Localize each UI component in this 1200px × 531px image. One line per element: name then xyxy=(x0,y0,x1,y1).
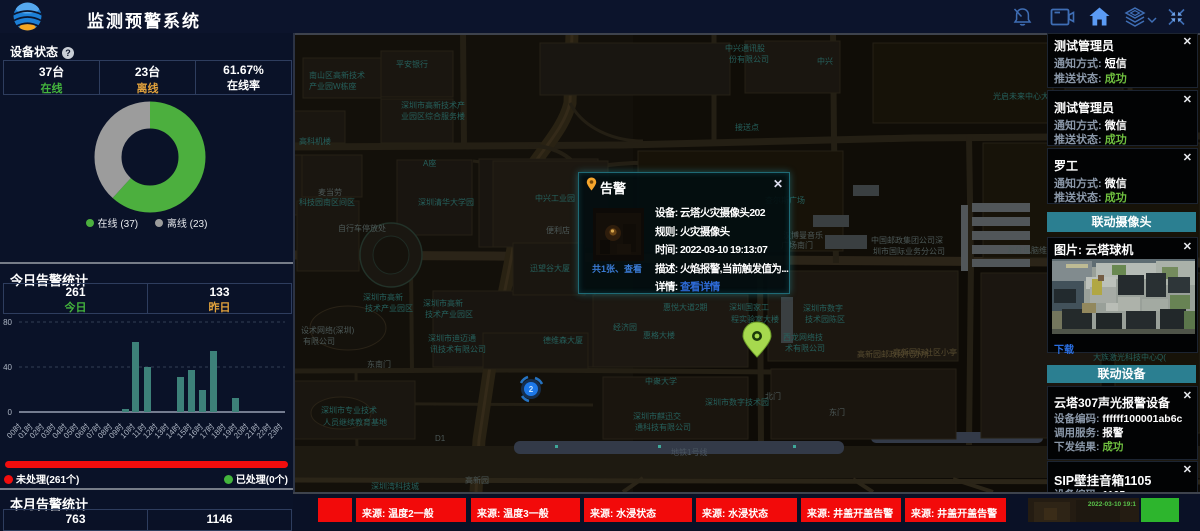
svg-text:惠悦大道2期: 惠悦大道2期 xyxy=(663,302,707,312)
svg-text:南山区高新技术: 南山区高新技术 xyxy=(309,70,365,80)
svg-text:份有限公司: 份有限公司 xyxy=(729,54,769,64)
svg-text:高新国际社区小亭: 高新国际社区小亭 xyxy=(893,347,957,357)
svg-text:业园区综合服务楼: 业园区综合服务楼 xyxy=(401,111,465,121)
svg-text:麦当劳: 麦当劳 xyxy=(318,187,342,197)
svg-text:A座: A座 xyxy=(423,158,436,168)
svg-text:40: 40 xyxy=(3,363,12,372)
svg-text:2: 2 xyxy=(529,385,534,394)
svg-text:接送点: 接送点 xyxy=(735,122,759,132)
svg-text:自行车停放处: 自行车停放处 xyxy=(338,223,386,233)
svg-text:中兴通讯股: 中兴通讯股 xyxy=(725,43,765,53)
svg-text:德维森大厦: 德维森大厦 xyxy=(543,335,583,345)
svg-text:人员继续教育基地: 人员继续教育基地 xyxy=(323,417,387,427)
svg-text:深圳市迪迈通: 深圳市迪迈通 xyxy=(428,333,476,343)
svg-text:东南门: 东南门 xyxy=(367,359,391,369)
svg-text:惠格大楼: 惠格大楼 xyxy=(643,330,675,340)
svg-text:D1: D1 xyxy=(435,434,446,443)
svg-text:地铁1号线: 地铁1号线 xyxy=(671,447,707,457)
svg-text:便利店: 便利店 xyxy=(546,225,570,235)
svg-text:中国邮政集团公司深: 中国邮政集团公司深 xyxy=(871,235,943,245)
svg-text:迅望谷大厦: 迅望谷大厦 xyxy=(530,263,570,273)
svg-text:北门: 北门 xyxy=(765,391,781,401)
svg-text:中兴工业园: 中兴工业园 xyxy=(535,193,575,203)
svg-text:深圳市麒迅交: 深圳市麒迅交 xyxy=(633,411,681,421)
svg-text:通科技有限公司: 通科技有限公司 xyxy=(635,422,691,432)
svg-text:中兴: 中兴 xyxy=(817,56,833,66)
svg-text:西龙网络技: 西龙网络技 xyxy=(783,332,823,342)
svg-text:2022-03-10 19:1: 2022-03-10 19:1 xyxy=(1088,501,1136,508)
svg-text:深圳湾科技城: 深圳湾科技城 xyxy=(371,481,419,491)
svg-text:深圳市高新技术产: 深圳市高新技术产 xyxy=(401,100,465,110)
svg-text:深圳市高新: 深圳市高新 xyxy=(423,298,463,308)
svg-text:讯技术有限公司: 讯技术有限公司 xyxy=(430,344,486,354)
svg-text:深圳市高新: 深圳市高新 xyxy=(363,292,403,302)
svg-text:技术产业园区: 技术产业园区 xyxy=(365,303,413,313)
svg-text:产业园W栋座: 产业园W栋座 xyxy=(309,81,357,91)
svg-text:经济园: 经济园 xyxy=(613,322,637,332)
svg-text:深圳市专业技术: 深圳市专业技术 xyxy=(321,405,377,415)
svg-text:有限公司: 有限公司 xyxy=(303,336,335,346)
svg-text:技术园陈区: 技术园陈区 xyxy=(805,314,845,324)
svg-text:80: 80 xyxy=(3,318,12,327)
svg-text:深圳市数字: 深圳市数字 xyxy=(803,303,843,313)
svg-text:平安银行: 平安银行 xyxy=(396,59,428,69)
svg-text:中衆大学: 中衆大学 xyxy=(645,376,677,386)
svg-text:高科机楼: 高科机楼 xyxy=(299,136,331,146)
svg-text:技术产业园区: 技术产业园区 xyxy=(425,309,473,319)
svg-text:深圳市数字技术园: 深圳市数字技术园 xyxy=(705,397,769,407)
svg-text:科技园南区间区: 科技园南区间区 xyxy=(299,197,355,207)
svg-text:深圳国家工: 深圳国家工 xyxy=(729,302,769,312)
svg-text:0: 0 xyxy=(8,408,13,417)
svg-text:圳市国际业务分公司: 圳市国际业务分公司 xyxy=(873,246,945,256)
svg-text:大族激光科技中心Q(: 大族激光科技中心Q( xyxy=(1093,352,1166,362)
svg-text:深圳清华大学园: 深圳清华大学园 xyxy=(418,197,474,207)
svg-text:术有限公司: 术有限公司 xyxy=(785,343,825,353)
svg-text:设术网络(深圳): 设术网络(深圳) xyxy=(301,325,355,335)
svg-text:高新园: 高新园 xyxy=(465,475,489,485)
svg-text:东门: 东门 xyxy=(829,407,845,417)
